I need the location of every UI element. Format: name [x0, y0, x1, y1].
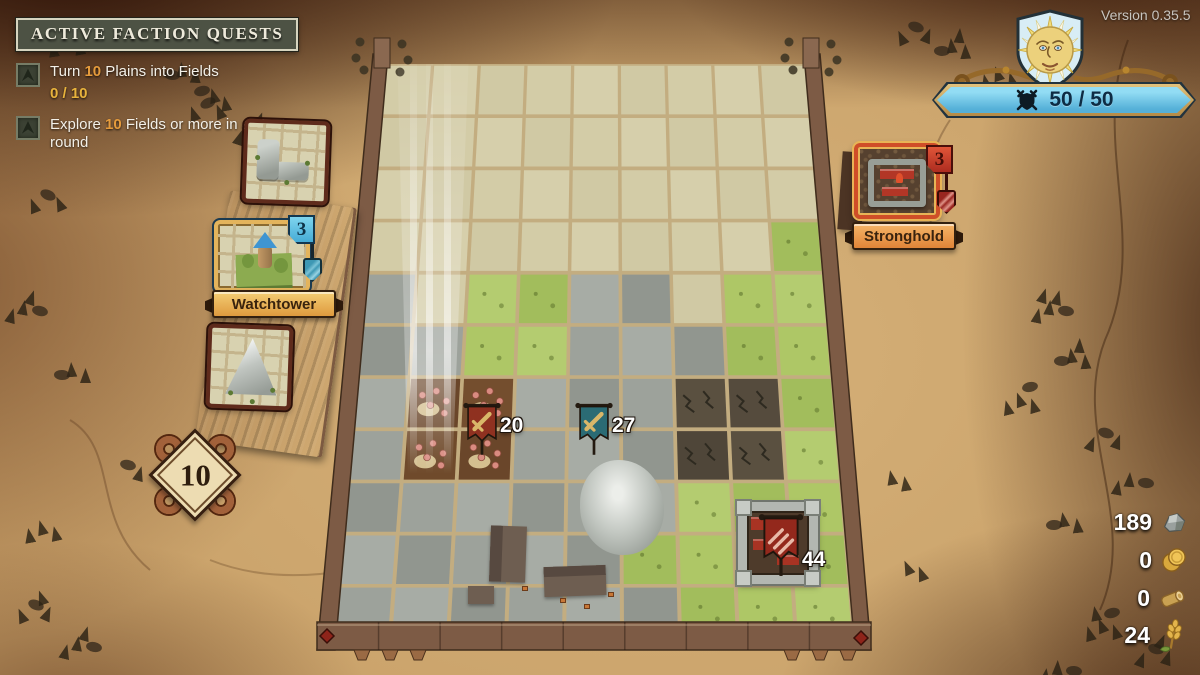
board-tile[interactable] [427, 118, 475, 167]
red-banner-claws-icon [758, 508, 804, 580]
battle-strength-value: 50 / 50 [1049, 88, 1113, 112]
board-tile[interactable] [673, 275, 722, 324]
board-tile[interactable] [678, 483, 731, 532]
frame-trim [840, 650, 856, 660]
battle-strength-banner: 50 / 50 [932, 82, 1196, 118]
board-tile[interactable] [622, 170, 669, 219]
wood-log-icon [1158, 584, 1188, 612]
board-tile[interactable] [349, 431, 404, 480]
board-tile[interactable] [521, 222, 569, 271]
board-tile[interactable] [622, 275, 670, 324]
red-banner-sword-icon [462, 398, 502, 458]
resource-wheat: 24 [1040, 618, 1188, 652]
board-tile[interactable] [714, 66, 761, 115]
board-tile[interactable] [781, 379, 834, 428]
board-tile[interactable] [680, 536, 734, 585]
board-tile[interactable] [522, 170, 569, 219]
frame-trim [410, 650, 426, 660]
board-tile[interactable] [524, 118, 570, 167]
wood-count: 0 [1137, 585, 1150, 612]
board-tile[interactable] [669, 118, 716, 167]
board-tile[interactable] [785, 431, 839, 480]
rock-art [256, 139, 279, 180]
board-tile[interactable] [431, 66, 478, 115]
card-nameplate: Stronghold [852, 222, 956, 250]
quest-text: Turn 10 Plains into Fields [50, 63, 304, 82]
board-tile[interactable] [571, 222, 618, 271]
board-tile[interactable] [396, 536, 452, 585]
board-tile[interactable] [768, 170, 817, 219]
board-tile[interactable] [478, 66, 524, 115]
hand-card-watchtower[interactable]: 3 Watchtower [212, 212, 348, 324]
building [543, 565, 606, 597]
board-tile[interactable] [572, 170, 618, 219]
unit-flag-enemy-stronghold[interactable]: 44 [758, 508, 804, 580]
quest-item: Turn 10 Plains into Fields 0 / 10 [16, 63, 304, 104]
frame-trim [354, 650, 370, 660]
board-tile[interactable] [517, 327, 567, 376]
crate [560, 598, 566, 603]
card-cost: 3 [297, 219, 307, 241]
quest-progress: 0 / 10 [50, 85, 304, 104]
unit-strength: 44 [802, 548, 825, 572]
castle-tower [735, 499, 752, 516]
board-tile[interactable] [467, 275, 517, 324]
gold-coins-icon [1160, 546, 1188, 574]
board-tile[interactable] [378, 118, 427, 167]
board-tile[interactable] [464, 327, 515, 376]
unit-flag-red-army[interactable]: 20 [462, 398, 502, 458]
badge-connector [311, 242, 314, 260]
wheat-count: 24 [1124, 622, 1150, 649]
village-buildings [460, 520, 640, 630]
quest-panel-title: ACTIVE FACTION QUESTS [16, 18, 298, 51]
quest-checkbox-icon [16, 116, 40, 140]
board-tile[interactable] [383, 66, 431, 115]
board-tile[interactable] [668, 66, 714, 115]
board-tile[interactable] [423, 170, 472, 219]
card-cost: 3 [935, 149, 945, 171]
board-tile[interactable] [622, 222, 670, 271]
board-post [803, 38, 819, 68]
frame-trim [812, 650, 828, 660]
castle-tower [804, 499, 821, 516]
building [489, 525, 527, 582]
card-title: Stronghold [864, 228, 944, 245]
board-tile[interactable] [411, 327, 463, 376]
bush-art [242, 254, 254, 268]
bush-art [274, 258, 288, 273]
stronghold-roof-art [882, 187, 908, 196]
blue-banner-sword-icon [574, 398, 614, 458]
board-tile[interactable] [721, 222, 770, 271]
card-title: Watchtower [232, 296, 316, 313]
board-tile[interactable] [765, 118, 813, 167]
castle-tower [804, 570, 821, 587]
hand-card-rock-corner[interactable] [242, 119, 331, 206]
game-screen: { "version_label": "Version 0.35.5", "qu… [0, 0, 1200, 675]
board-tile[interactable] [719, 170, 767, 219]
board-tile[interactable] [513, 431, 565, 480]
frame-trim [784, 650, 800, 660]
castle-tower [735, 570, 752, 587]
board-tile[interactable] [771, 222, 821, 271]
board-tile[interactable] [368, 222, 419, 271]
board-tile[interactable] [729, 379, 781, 428]
stone-icon [1160, 508, 1188, 536]
board-tile[interactable] [674, 327, 724, 376]
board-tile[interactable] [526, 66, 571, 115]
gold-count: 0 [1139, 547, 1152, 574]
board-tile[interactable] [475, 118, 522, 167]
board-tile[interactable] [354, 379, 408, 428]
building [468, 586, 494, 604]
board-tile[interactable] [571, 275, 619, 324]
frame-trim [382, 650, 398, 660]
board-tile[interactable] [519, 275, 568, 324]
board-tile[interactable] [470, 222, 519, 271]
stone-count: 189 [1114, 509, 1152, 536]
board-tile[interactable] [570, 327, 619, 376]
board-tile[interactable] [761, 66, 809, 115]
board-post [374, 38, 390, 68]
deck-counter[interactable]: 10 [146, 426, 244, 524]
tower-art [258, 246, 272, 268]
board-tile[interactable] [672, 222, 721, 271]
board-tile[interactable] [473, 170, 521, 219]
board-tile[interactable] [363, 275, 415, 324]
resource-wood: 0 [1040, 584, 1188, 612]
enemy-card-stronghold[interactable]: 3 Stronghold [838, 140, 974, 256]
board-tile[interactable] [778, 327, 830, 376]
unit-strength: 27 [612, 414, 635, 438]
unit-flag-blue-army[interactable]: 27 [574, 398, 614, 458]
board-tile[interactable] [573, 118, 618, 167]
deck-count: 10 [180, 457, 211, 493]
board-tile[interactable] [731, 431, 784, 480]
board-tile[interactable] [574, 66, 618, 115]
hand-card-mountain[interactable] [206, 324, 294, 411]
stronghold-wall-art [868, 159, 926, 207]
board-tile[interactable] [775, 275, 826, 324]
board-tile[interactable] [717, 118, 764, 167]
board-tile[interactable] [344, 483, 400, 532]
card-nameplate: Watchtower [212, 290, 336, 318]
board-tile[interactable] [676, 379, 727, 428]
resource-gold: 0 [1040, 546, 1188, 574]
board-tile[interactable] [415, 275, 466, 324]
board-tile[interactable] [724, 275, 774, 324]
quest-checkbox-icon [16, 63, 40, 87]
board-tile[interactable] [400, 483, 455, 532]
board-tile[interactable] [726, 327, 777, 376]
crate [584, 604, 590, 609]
crate [608, 592, 614, 597]
board-tile[interactable] [373, 170, 423, 219]
board-tile[interactable] [677, 431, 729, 480]
board-tile[interactable] [359, 327, 412, 376]
board-tile[interactable] [621, 118, 667, 167]
board-tile[interactable] [670, 170, 718, 219]
resource-stone: 189 [1040, 508, 1188, 536]
board-tile[interactable] [339, 536, 396, 585]
board-tile[interactable] [621, 66, 666, 115]
unit-strength: 20 [500, 414, 523, 438]
crossed-swords-shield-icon [1014, 87, 1040, 113]
wheat-icon [1158, 618, 1188, 652]
board-tile[interactable] [419, 222, 469, 271]
board-tile[interactable] [622, 327, 671, 376]
version-label: Version 0.35.5 [1101, 7, 1191, 23]
crate [522, 586, 528, 591]
flame-art [896, 173, 903, 183]
